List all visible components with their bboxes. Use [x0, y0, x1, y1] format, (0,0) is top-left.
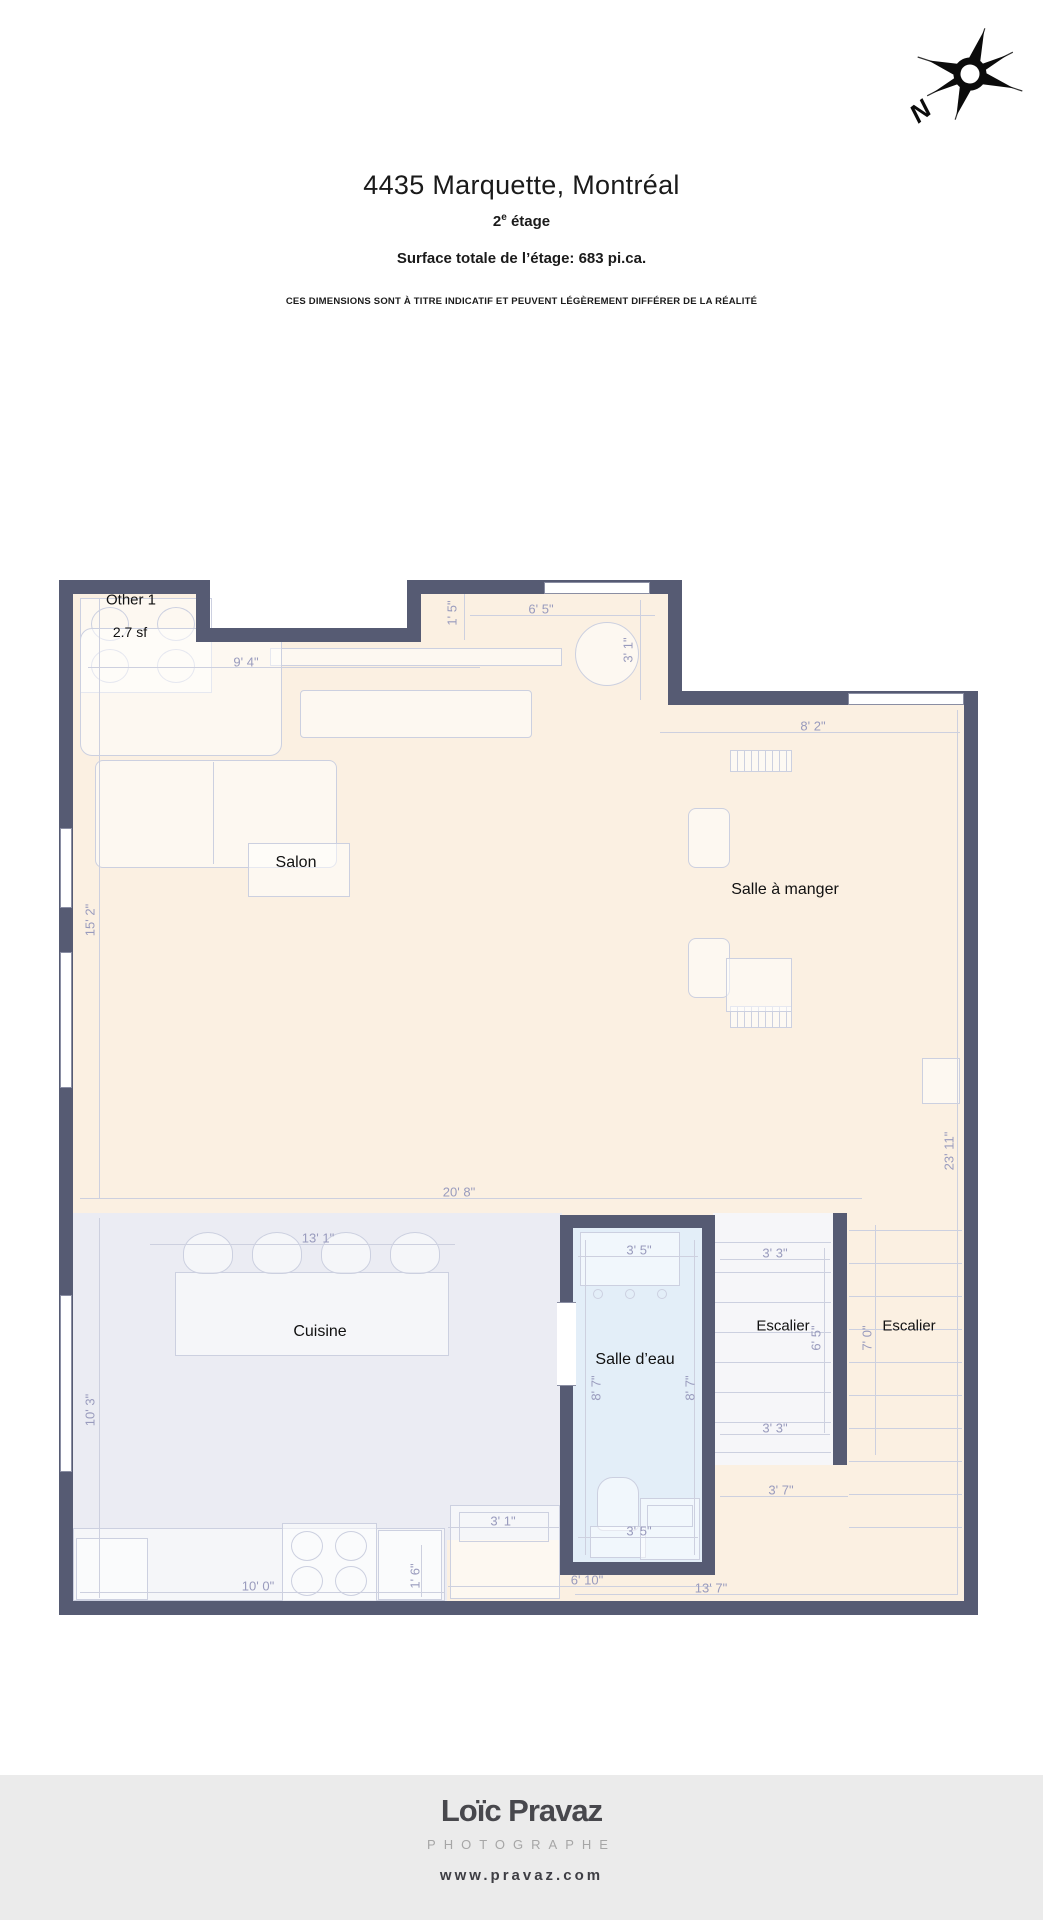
dimension-line	[957, 710, 958, 1595]
stair-tread-line	[715, 1242, 831, 1243]
surface-total-label: Surface totale de l’étage: 683 pi.ca.	[0, 250, 1043, 267]
photographer-website: www.pravaz.com	[0, 1867, 1043, 1884]
window-left-2	[60, 952, 72, 1088]
dimension-label: 3' 3"	[762, 1421, 787, 1436]
dimension-label: 23' 11"	[942, 1132, 957, 1171]
window-left-3	[60, 1295, 72, 1472]
compass-north-label: N	[903, 93, 937, 129]
bar-stool-icon	[390, 1232, 440, 1274]
wall-top-a	[59, 580, 210, 594]
tv-icon	[300, 690, 532, 738]
stair-tread-line	[849, 1296, 962, 1297]
dimension-label: 3' 5"	[626, 1243, 651, 1258]
dimension-label: 9' 4"	[233, 655, 258, 670]
dimension-line	[640, 600, 641, 700]
shelf-icon	[922, 1058, 960, 1104]
photographer-logo: Loïc Pravaz	[0, 1793, 1043, 1829]
stair-tread-line	[849, 1428, 962, 1429]
dimension-label: 20' 8"	[443, 1185, 475, 1200]
wall-bottom	[59, 1601, 978, 1615]
media-console-icon	[270, 648, 562, 666]
dimension-label: 3' 5"	[626, 1524, 651, 1539]
dining-chair-icon	[688, 938, 730, 998]
dimension-line	[464, 592, 465, 640]
sofa-cushion-divider	[213, 762, 214, 864]
dimension-label: 1' 6"	[408, 1563, 423, 1588]
bar-stool-icon	[183, 1232, 233, 1274]
dimension-label: 3' 3"	[762, 1246, 787, 1261]
bathroom-door	[557, 1302, 576, 1386]
kitchen-island-icon	[175, 1272, 449, 1356]
stair-tread-line	[849, 1230, 962, 1231]
wall-bath-left	[560, 1215, 573, 1575]
window-top-center	[544, 582, 650, 594]
room-label: Salle d’eau	[595, 1351, 674, 1369]
compass-rose-icon: N	[900, 22, 1028, 137]
dimension-label: 13' 7"	[695, 1581, 727, 1596]
stair-tread-line	[715, 1272, 831, 1273]
sofa-chaise-icon	[80, 628, 282, 756]
wall-bath-right	[702, 1215, 715, 1575]
floor-label: 2e étage	[0, 212, 1043, 230]
stair-tread-line	[715, 1452, 831, 1453]
dimension-label: 6' 5"	[809, 1325, 824, 1350]
bar-stool-icon	[252, 1232, 302, 1274]
dimension-label: 3' 1"	[490, 1514, 515, 1529]
stair-tread-line	[849, 1263, 962, 1264]
wall-step-right	[668, 580, 682, 705]
room-label: 2.7 sf	[113, 624, 147, 640]
stove-bottom-icon	[282, 1523, 377, 1603]
room-label: Escalier	[756, 1318, 809, 1335]
room-label: Other 1	[106, 592, 156, 609]
dimension-label: 15' 2"	[83, 904, 98, 936]
dimension-label: 1' 5"	[445, 600, 460, 625]
dimension-label: 8' 7"	[589, 1375, 604, 1400]
dimension-label: 8' 2"	[800, 719, 825, 734]
dimension-label: 10' 0"	[242, 1579, 274, 1594]
dining-chair-icon	[688, 808, 730, 868]
footer-band: Loïc Pravaz PHOTOGRAPHE www.pravaz.com	[0, 1775, 1043, 1920]
floor-plan-page: N 4435 Marquette, Montréal 2e étage Surf…	[0, 0, 1043, 1920]
room-label: Salle à manger	[731, 881, 839, 899]
wall-bath-top	[560, 1215, 715, 1228]
wall-stairs-divider	[833, 1213, 847, 1465]
dimension-label: 10' 3"	[83, 1394, 98, 1426]
wall-right	[964, 691, 978, 1615]
dining-table-icon	[726, 958, 792, 1012]
dimension-line	[88, 667, 480, 668]
stair-tread-line	[849, 1461, 962, 1462]
dimension-label: 7' 0"	[860, 1325, 875, 1350]
dimension-line	[470, 615, 655, 616]
dimension-label: 3' 7"	[768, 1483, 793, 1498]
stair-tread-line	[849, 1494, 962, 1495]
dimension-line	[575, 1594, 958, 1595]
dimension-label: 13' 1"	[302, 1231, 334, 1246]
stair-tread-line	[849, 1395, 962, 1396]
page-title: 4435 Marquette, Montréal	[0, 170, 1043, 201]
dimension-label: 6' 5"	[528, 602, 553, 617]
washer-icon	[580, 1232, 680, 1286]
stair-tread-line	[715, 1362, 831, 1363]
stair-tread-line	[849, 1362, 962, 1363]
disclaimer-text: CES DIMENSIONS SONT À TITRE INDICATIF ET…	[0, 296, 1043, 307]
photographer-tagline: PHOTOGRAPHE	[0, 1837, 1043, 1852]
dimension-line	[585, 1240, 586, 1555]
dimension-line	[875, 1225, 876, 1455]
wall-bath-bottom	[560, 1562, 715, 1575]
dimension-line	[99, 598, 100, 1198]
stair-tread-line	[715, 1392, 831, 1393]
wall-top-b	[196, 628, 421, 642]
dimension-label: 3' 1"	[621, 637, 636, 662]
window-top-right	[848, 693, 964, 705]
stair-tread-line	[715, 1302, 831, 1303]
room-label: Cuisine	[293, 1323, 346, 1341]
dimension-label: 8' 7"	[683, 1375, 698, 1400]
dimension-line	[824, 1248, 825, 1433]
room-label: Salon	[276, 854, 317, 872]
console-keys-icon	[730, 750, 792, 772]
window-left-1	[60, 828, 72, 908]
dimension-line	[99, 1218, 100, 1598]
kitchen-cabinet-icon	[76, 1538, 148, 1600]
room-label: Escalier	[882, 1318, 935, 1335]
stair-tread-line	[849, 1527, 962, 1528]
